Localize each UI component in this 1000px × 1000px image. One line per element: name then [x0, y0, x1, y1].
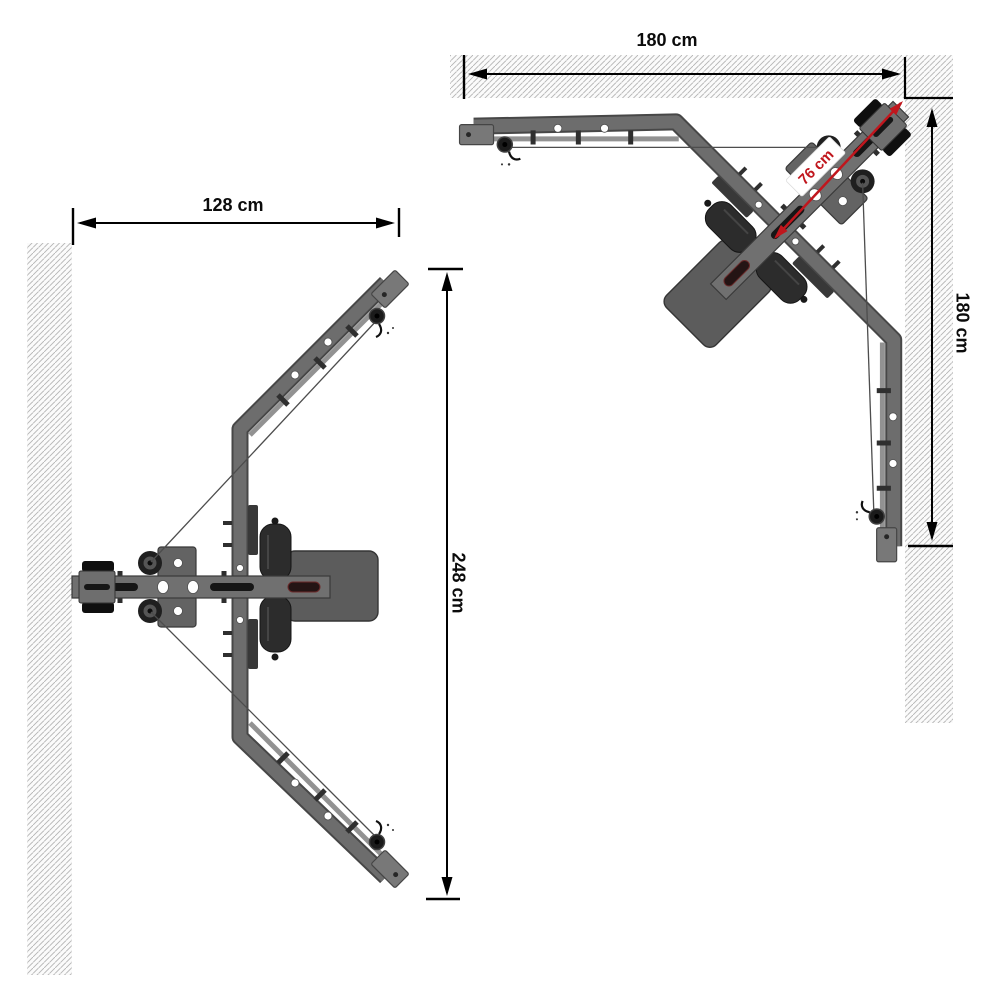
- left-view: 128 cm 248 cm: [27, 195, 469, 975]
- mounting-dimensions-diagram: 128 cm 248 cm 180 cm: [0, 0, 1000, 1000]
- left-width-dimension: 128 cm: [73, 195, 399, 245]
- left-wall: [27, 243, 72, 975]
- right-view: 180 cm 180 cm 76 cm: [450, 0, 1000, 723]
- diagram-canvas: 128 cm 248 cm 180 cm: [0, 0, 1000, 1000]
- left-width-label: 128 cm: [202, 195, 263, 215]
- left-depth-dimension: 248 cm: [426, 269, 469, 899]
- corner-width-label: 180 cm: [636, 30, 697, 50]
- corner-depth-label: 180 cm: [953, 292, 973, 353]
- machine-flat-mount: [72, 270, 409, 888]
- top-wall: [450, 55, 953, 98]
- left-depth-label: 248 cm: [449, 552, 469, 613]
- right-wall: [905, 98, 953, 723]
